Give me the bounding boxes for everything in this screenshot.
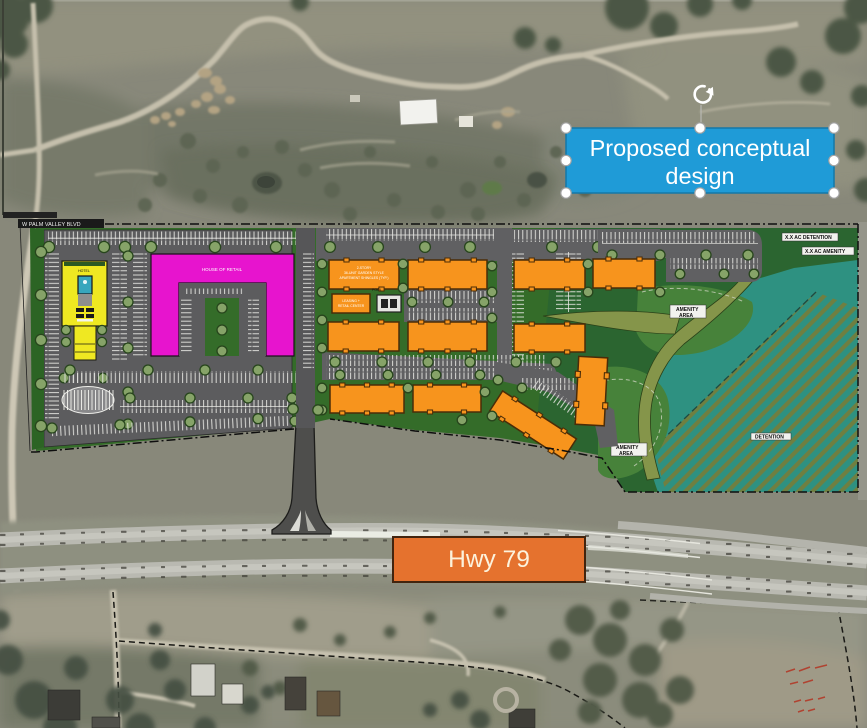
svg-text:HOUSE OF RETAIL: HOUSE OF RETAIL xyxy=(202,267,243,272)
svg-text:AREA: AREA xyxy=(679,313,694,319)
svg-text:X.X AC DETENTION: X.X AC DETENTION xyxy=(785,235,832,241)
svg-text:X.X AC AMENITY: X.X AC AMENITY xyxy=(805,249,846,255)
svg-text:HOTEL: HOTEL xyxy=(78,269,90,273)
svg-text:RETAIL CENTER: RETAIL CENTER xyxy=(338,304,365,308)
svg-text:APARTMENT SHINGLES (TYP.): APARTMENT SHINGLES (TYP.) xyxy=(340,276,389,280)
svg-text:2-STORY: 2-STORY xyxy=(357,266,372,270)
svg-text:DETENTION: DETENTION xyxy=(755,435,784,441)
svg-text:LEASING +: LEASING + xyxy=(342,299,360,303)
svg-text:Hwy 79: Hwy 79 xyxy=(448,546,530,573)
svg-text:W PALM VALLEY BLVD: W PALM VALLEY BLVD xyxy=(22,222,81,228)
svg-text:Proposed conceptual: Proposed conceptual xyxy=(590,135,811,161)
svg-text:AREA: AREA xyxy=(619,451,634,457)
svg-text:POOL: POOL xyxy=(372,288,382,292)
svg-text:36-UNIT GARDEN STYLE: 36-UNIT GARDEN STYLE xyxy=(344,271,385,275)
svg-text:design: design xyxy=(665,163,734,189)
